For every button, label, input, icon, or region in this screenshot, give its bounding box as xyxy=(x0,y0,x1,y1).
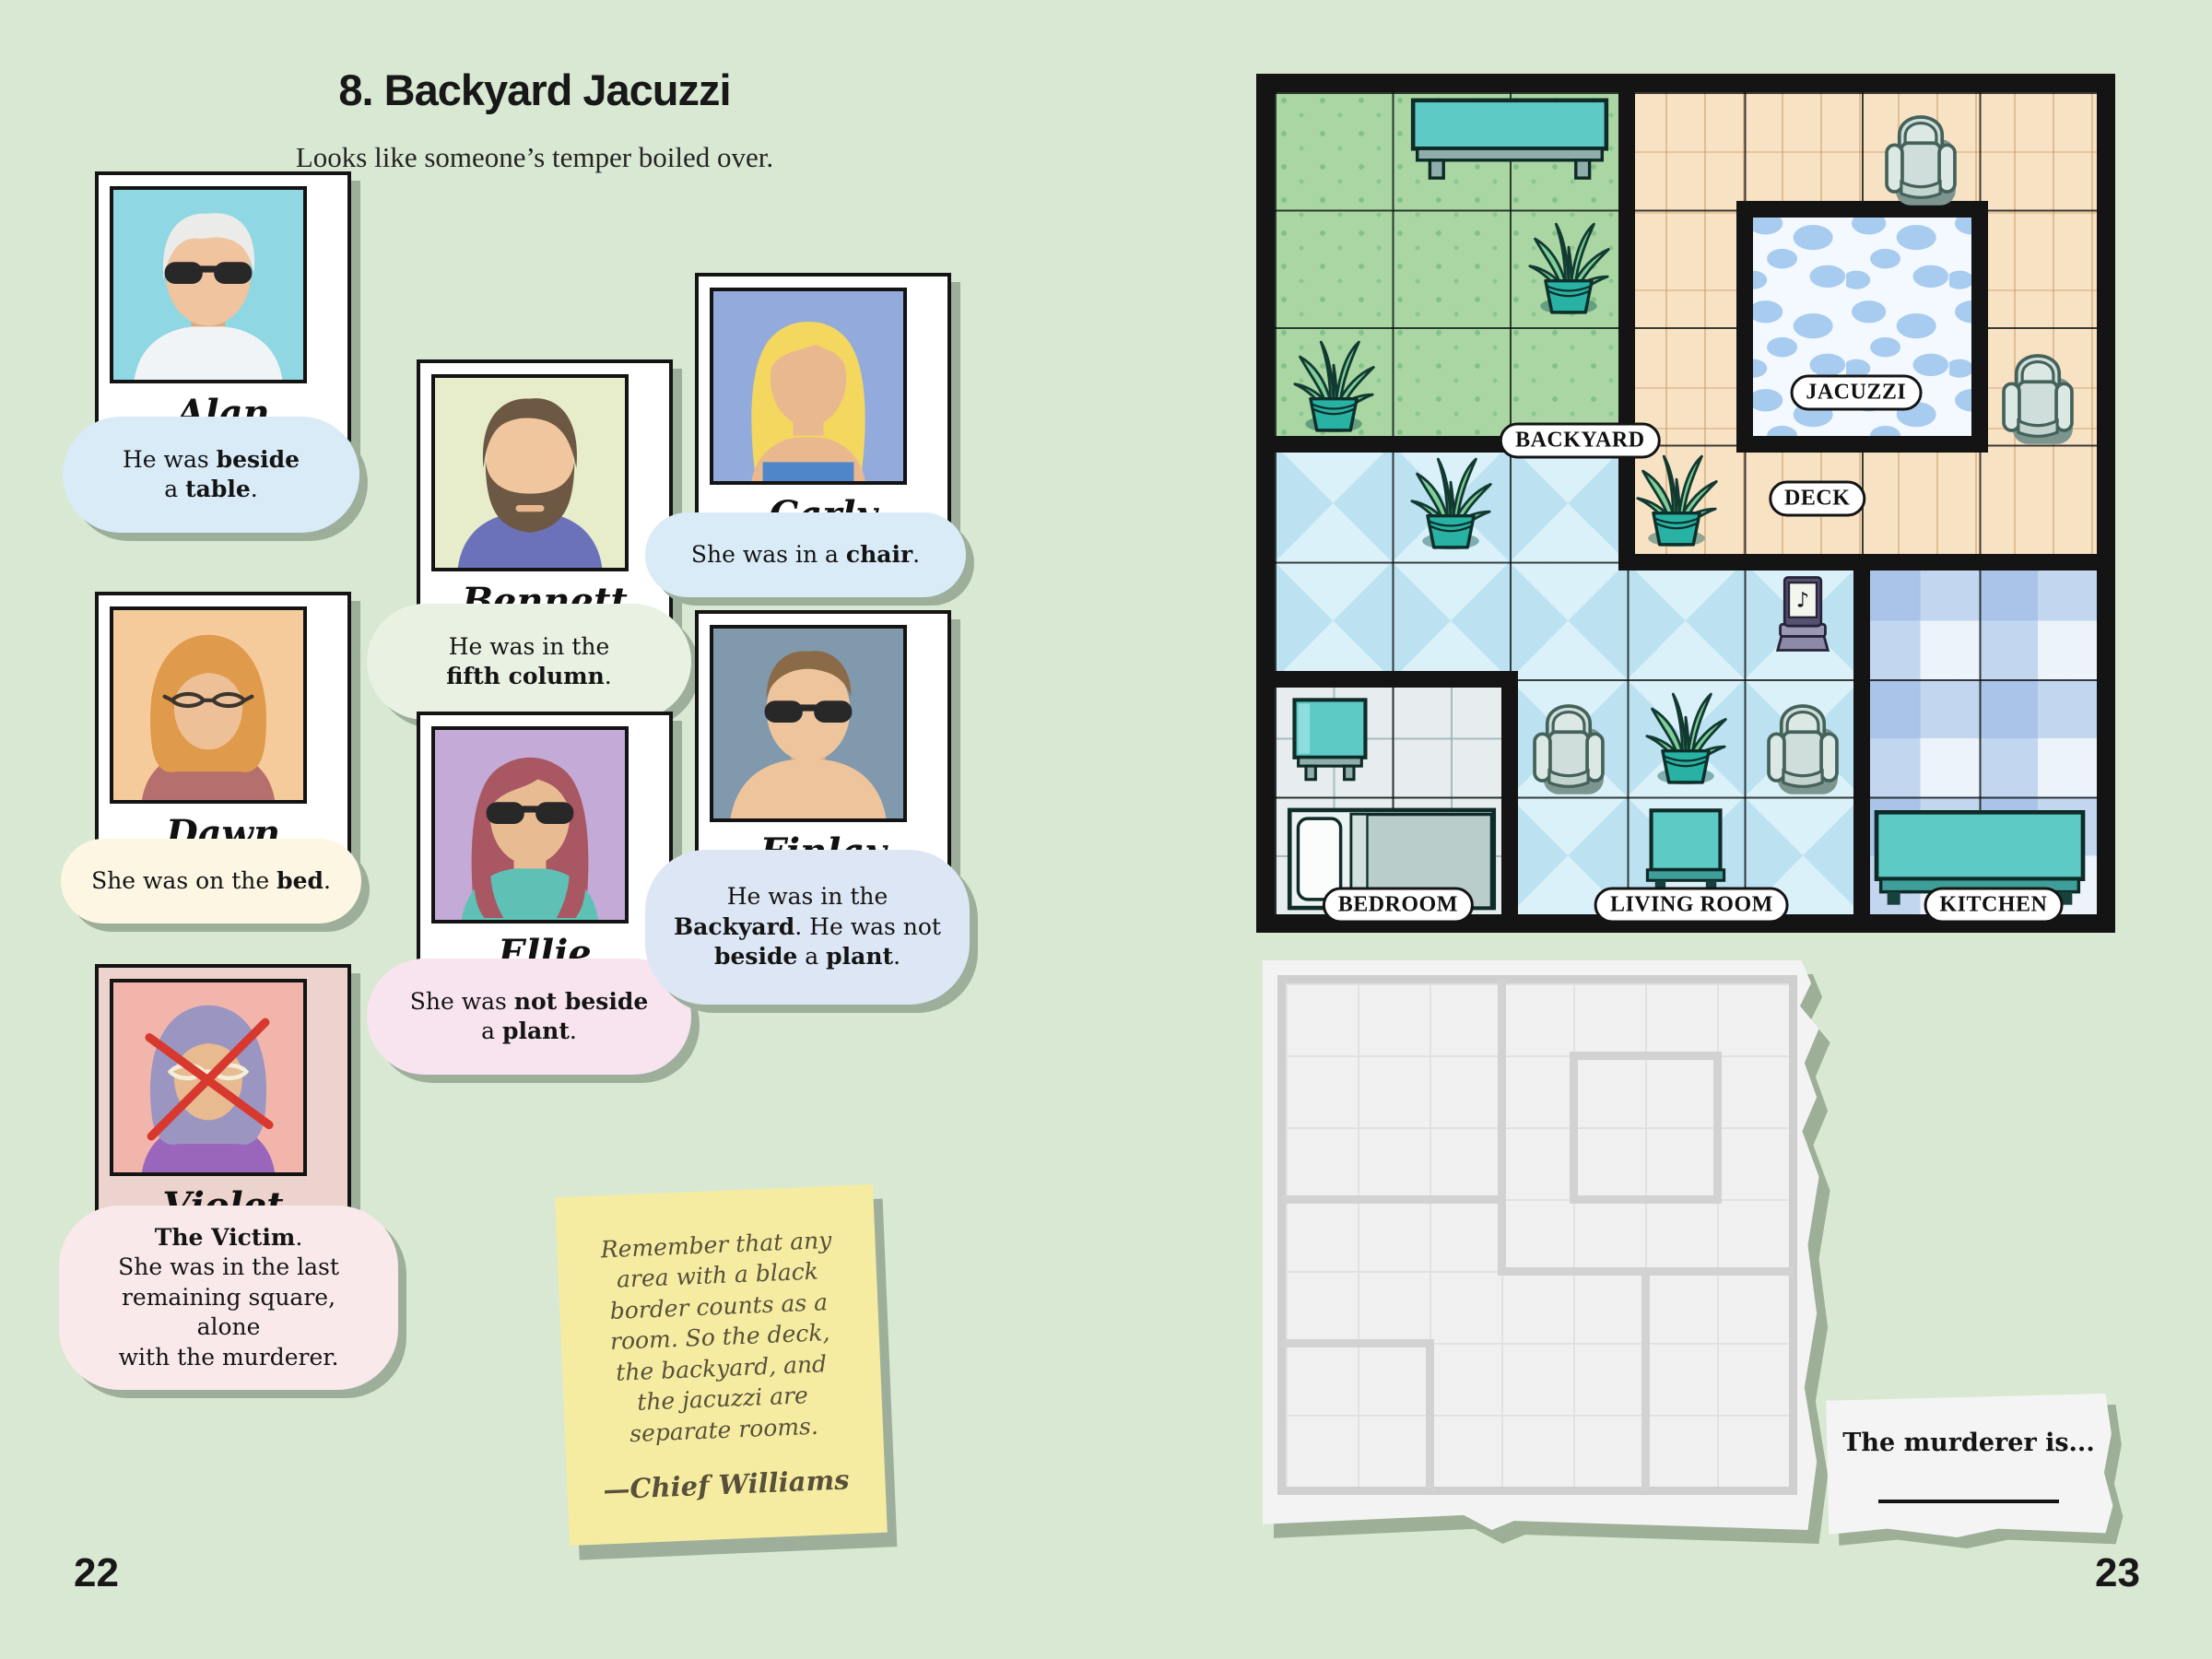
plant-icon xyxy=(1281,334,1386,439)
chief-sticky-note: Remember that anyarea with a blackborder… xyxy=(555,1184,888,1546)
plant-icon xyxy=(1624,448,1729,553)
clue-bubble-carly: She was in a chair. xyxy=(645,512,966,597)
suspect-card-dawn: Dawn xyxy=(95,592,351,866)
clue-bubble-dawn: She was on the bed. xyxy=(61,839,361,924)
floorplan-map: ♪ BACKYARDJACU xyxy=(1256,74,2115,933)
suspect-portrait-bennett xyxy=(431,374,629,571)
answer-grid-wrapper xyxy=(1263,960,1821,1530)
chief-note-text: Remember that anyarea with a blackborder… xyxy=(600,1225,840,1451)
suspect-portrait-finlay xyxy=(710,625,907,822)
clue-bubble-finlay: He was in theBackyard. He was notbeside … xyxy=(645,850,970,1005)
plant-icon xyxy=(1398,451,1503,556)
chair-icon xyxy=(1519,693,1618,798)
svg-text:♪: ♪ xyxy=(1796,588,1809,612)
chair-icon xyxy=(1753,693,1853,798)
suspect-card-bennett: Bennett xyxy=(417,359,673,634)
suspect-portrait-violet xyxy=(110,979,307,1176)
suspect-card-alan: Alan xyxy=(95,171,351,446)
tv-icon xyxy=(1638,803,1734,899)
clue-text-dawn: She was on the bed. xyxy=(91,866,331,897)
room-label-bedroom: BEDROOM xyxy=(1323,887,1474,923)
puzzle-subtitle: Looks like someone’s temper boiled over. xyxy=(147,141,922,174)
clue-text-bennett: He was in thefifth column. xyxy=(446,632,612,692)
page-number-left: 22 xyxy=(74,1550,119,1596)
page-header: 8. Backyard Jacuzzi Looks like someone’s… xyxy=(147,65,922,174)
room-label-deck: DECK xyxy=(1769,480,1865,516)
chair-icon xyxy=(1871,104,1971,209)
clue-text-finlay: He was in theBackyard. He was notbeside … xyxy=(674,882,941,972)
suspect-card-ellie: Ellie xyxy=(417,712,673,986)
clue-text-alan: He was besidea table. xyxy=(123,445,300,505)
suspect-portrait-carly xyxy=(710,288,907,485)
suspect-portrait-ellie xyxy=(431,726,629,924)
clue-bubble-ellie: She was not besidea plant. xyxy=(367,959,691,1075)
plant-icon xyxy=(1516,216,1621,321)
room-label-jacuzzi: JACUZZI xyxy=(1790,375,1922,411)
suspect-portrait-dawn xyxy=(110,606,307,804)
plant-icon xyxy=(1633,686,1738,791)
page-number-right: 23 xyxy=(2030,1550,2140,1596)
clue-text-violet: The Victim.She was in the lastremaining … xyxy=(87,1223,371,1373)
suspect-portrait-alan xyxy=(110,186,307,383)
bench-icon xyxy=(1403,94,1617,184)
clue-text-carly: She was in a chair. xyxy=(691,540,920,571)
music-icon: ♪ xyxy=(1759,568,1846,660)
murderer-note[interactable]: The murderer is... xyxy=(1823,1394,2114,1537)
answer-grid-paper xyxy=(1263,960,1821,1530)
answer-grid[interactable] xyxy=(1277,975,1797,1495)
chair-icon xyxy=(1988,343,2088,448)
chief-note-signature: —Chief Williams xyxy=(603,1465,850,1506)
room-label-kitchen: KITCHEN xyxy=(1924,887,2063,923)
suspect-card-finlay: Finlay xyxy=(695,610,951,885)
clue-bubble-bennett: He was in thefifth column. xyxy=(367,604,691,720)
room-label-living-room: LIVING ROOM xyxy=(1594,887,1789,923)
room-label-backyard: BACKYARD xyxy=(1500,423,1660,459)
answer-blank-line[interactable] xyxy=(1878,1500,2059,1503)
puzzle-title: 8. Backyard Jacuzzi xyxy=(147,65,922,115)
suspect-card-carly: Carly xyxy=(695,273,951,547)
table-icon xyxy=(1283,688,1379,788)
suspect-card-violet: Violet xyxy=(95,964,351,1239)
murderer-prompt: The murderer is... xyxy=(1842,1429,2094,1457)
clue-bubble-violet: The Victim.She was in the lastremaining … xyxy=(59,1206,398,1390)
clue-text-ellie: She was not besidea plant. xyxy=(410,987,649,1047)
murderer-note-wrapper: The murderer is... xyxy=(1823,1394,2114,1537)
clue-bubble-alan: He was besidea table. xyxy=(63,417,359,533)
